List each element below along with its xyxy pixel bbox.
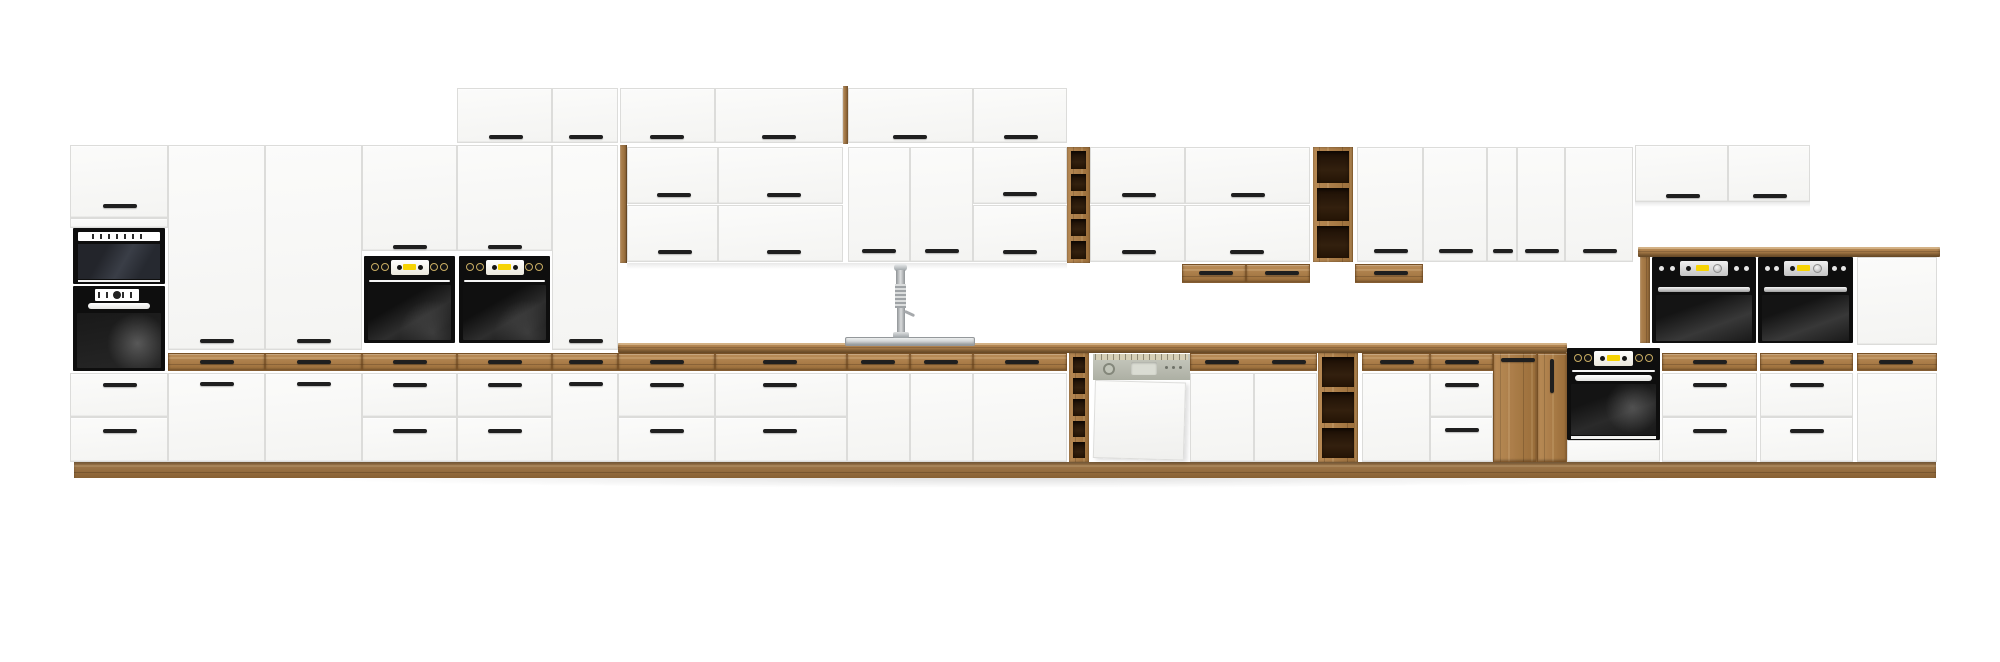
built-under-oven-knob-icon <box>1584 354 1592 362</box>
wall-shelf-narrow-cubby <box>1071 151 1086 169</box>
counter-oven-2-display <box>1797 265 1810 271</box>
faucet-base <box>893 332 909 338</box>
wall5-flip-lower <box>973 205 1067 262</box>
ovenhouse2-drawer-2 <box>457 417 552 462</box>
wall-short-2 <box>1728 145 1810 202</box>
wall11-door <box>1517 147 1565 262</box>
top-box-4-handle <box>762 135 796 139</box>
built-under-oven-door-handle <box>1575 375 1652 381</box>
tall1-drawer-1 <box>70 373 168 417</box>
ovenhouse1-drawer-1-handle <box>393 383 427 387</box>
wall3-door <box>848 147 910 262</box>
wall4-door <box>910 147 973 262</box>
built-in-oven-1-display-panel <box>391 260 429 275</box>
counter-oven-1 <box>1652 257 1756 343</box>
tall1-built-in-oven-display <box>95 289 139 301</box>
wall2-flip-lower-handle <box>767 250 801 254</box>
ovenhouse1-oak-drawer-handle <box>393 360 427 364</box>
sinkbase-oak-drawer-2-handle <box>924 360 958 364</box>
built-under-oven-control-band <box>1567 348 1660 368</box>
tall1-drawer-1-handle <box>103 383 137 387</box>
base7-drawer-1-handle <box>1693 383 1727 387</box>
pantry2-lower-door <box>168 373 265 462</box>
underwall-drawer-1 <box>1182 264 1246 283</box>
wall-shelf-wide-cubby <box>1317 151 1349 183</box>
base2-oak-drawer-handle <box>763 360 797 364</box>
base2-drawer-2 <box>715 417 847 462</box>
built-in-oven-2-knob-icon <box>535 263 543 271</box>
dishwasher-rack-strip <box>1095 354 1188 360</box>
ovenhouse1-drawer-1 <box>362 373 457 417</box>
built-in-oven-2-power-button <box>513 265 518 270</box>
top-box-6 <box>973 88 1067 143</box>
wall-shelf-wide <box>1313 147 1353 262</box>
base4-oak-drawer-handle <box>1272 360 1306 364</box>
faucet <box>886 264 916 338</box>
base6-oak-drawer-handle <box>1445 360 1479 364</box>
counter-oven-1-knob-icon <box>1734 266 1739 271</box>
wall10-door <box>1487 147 1517 262</box>
wall6-flip-lower-handle <box>1122 250 1156 254</box>
base8-drawer-2 <box>1760 417 1853 462</box>
base5-oak-drawer-handle <box>1380 360 1414 364</box>
tall1-shelf-strip <box>70 218 168 228</box>
kitchen-scene <box>0 0 2000 662</box>
built-in-oven-1-knob-icon <box>371 263 379 271</box>
underwall-drawer-2-handle <box>1265 271 1299 275</box>
built-under-oven-knob-icon <box>1635 354 1643 362</box>
built-under-oven-knob-icon <box>1574 354 1582 362</box>
top-box-2-handle <box>569 135 603 139</box>
counter-oven-2-knob-icon <box>1765 266 1770 271</box>
oak-door-1-handle <box>1501 358 1535 362</box>
tall1-drawer-2-handle <box>103 429 137 433</box>
built-under-oven-knob-icon <box>1645 354 1653 362</box>
sinkbase-oak-drawer-1 <box>847 353 910 371</box>
tall1-built-in-oven-door-handle <box>88 303 150 309</box>
counter-oven-2-knob-icon <box>1774 266 1779 271</box>
wall10-door-handle <box>1493 249 1513 253</box>
built-in-oven-2-door-trim <box>464 280 545 282</box>
top-box-4 <box>715 88 843 143</box>
pantry2-lower-door-handle <box>200 382 234 386</box>
ovenhouse1-drawer-2 <box>362 417 457 462</box>
wall6-flip-upper <box>1090 147 1185 204</box>
base3-oak-drawer-handle <box>1005 360 1039 364</box>
base-shelf-narrow-cubby <box>1073 421 1085 437</box>
tall1-built-in-oven-display-knob-icon <box>113 291 121 299</box>
sinkbase-oak-drawer-1-handle <box>861 360 895 364</box>
counter-oven-1-door-handle <box>1658 287 1750 292</box>
wall8-door-handle <box>1374 249 1408 253</box>
built-in-oven-2-knob-icon <box>466 263 474 271</box>
base1-drawer-1-handle <box>650 383 684 387</box>
dishwasher-door <box>1093 380 1186 461</box>
oak-door-2 <box>1537 353 1567 462</box>
base9-oak-drawer-handle <box>1879 360 1913 364</box>
counter-oven-2-door-handle <box>1764 287 1847 292</box>
wall-short-1 <box>1635 145 1728 202</box>
top-box-3 <box>620 88 715 143</box>
built-in-oven-1-knob-icon <box>430 263 438 271</box>
ovenhouse2-oak-drawer <box>457 353 552 371</box>
base3-oak-drawer <box>973 353 1067 371</box>
base-shelf-narrow-cubby <box>1073 399 1085 415</box>
pantry4-upper-door <box>552 145 618 350</box>
wall-shelf-narrow-cubby <box>1071 219 1086 237</box>
compact-oven <box>73 228 165 284</box>
ovenhouse2-upper-door <box>457 145 552 251</box>
tall1-built-in-oven-door-glass <box>77 313 161 368</box>
sinkbase-door-2 <box>910 373 973 462</box>
plinth <box>74 462 1936 478</box>
built-in-oven-2-power-button <box>492 265 497 270</box>
wall5-flip-upper <box>973 147 1067 204</box>
ovenhouse2-drawer-2-handle <box>488 429 522 433</box>
pantry3-upper-door-handle <box>297 339 331 343</box>
top-box-5-handle <box>893 135 927 139</box>
shade-under-wall <box>627 263 1067 269</box>
base4-door-2 <box>1254 373 1317 462</box>
base6-drawer-2-handle <box>1445 428 1479 432</box>
ovenhouse1-upper-door-handle <box>393 245 427 249</box>
base-shelf-wide <box>1318 353 1358 462</box>
pantry4-oak-drawer <box>552 353 618 371</box>
wall6-flip-lower <box>1090 205 1185 262</box>
pantry3-oak-drawer-handle <box>297 360 331 364</box>
base8-drawer-1 <box>1760 373 1853 417</box>
base8-oak-drawer-handle <box>1790 360 1824 364</box>
base-shelf-narrow-cubby <box>1073 378 1085 394</box>
wall12-door <box>1565 147 1633 262</box>
base1-drawer-1 <box>618 373 715 417</box>
base4-door-1 <box>1190 373 1254 462</box>
counter-oven-2-door-glass <box>1762 295 1849 341</box>
counter-oven-1-power-button <box>1686 266 1691 271</box>
oak-door-1 <box>1493 353 1537 462</box>
ovenhouse2-drawer-1 <box>457 373 552 417</box>
built-in-oven-2-display <box>498 264 511 270</box>
dishwasher-buttons <box>1165 366 1182 369</box>
built-in-oven-2-knob-icon <box>525 263 533 271</box>
built-in-oven-1-display <box>403 264 416 270</box>
built-in-oven-1-door-trim <box>369 280 450 282</box>
wall-short-1-handle <box>1666 194 1700 198</box>
base7-drawer-2-handle <box>1693 429 1727 433</box>
built-in-oven-1 <box>364 256 455 343</box>
counter-oven-1-control-band <box>1652 257 1756 279</box>
built-in-oven-2-control-band <box>459 256 550 278</box>
counter-oven-2-power-button <box>1790 266 1795 271</box>
base7-oak-drawer-handle <box>1693 360 1727 364</box>
dishwasher-dial <box>1103 363 1115 375</box>
underwall-drawer-1-handle <box>1199 271 1233 275</box>
hutch-door <box>1857 257 1937 345</box>
base6-drawer-1 <box>1430 373 1493 417</box>
tall1-top-door <box>70 145 168 218</box>
compact-oven-screen <box>78 244 160 279</box>
wall-end-panel <box>620 145 627 263</box>
ovenhouse2-drawer-1-handle <box>488 383 522 387</box>
base5-oak-drawer <box>1362 353 1430 371</box>
base7-drawer-1 <box>1662 373 1757 417</box>
pantry4-lower-door <box>552 373 618 462</box>
base8-drawer-2-handle <box>1790 429 1824 433</box>
built-under-oven <box>1567 348 1660 440</box>
built-in-oven-1-door-glass <box>368 285 451 340</box>
wall2-flip-upper <box>718 147 843 204</box>
wall11-door-handle <box>1525 249 1559 253</box>
counter-oven-2-dial-knob <box>1813 264 1822 273</box>
dishwasher <box>1093 354 1190 460</box>
base-shelf-wide-cubby <box>1322 392 1354 422</box>
built-in-oven-2-knob-icon <box>476 263 484 271</box>
counter-oven-1-knob-icon <box>1744 266 1749 271</box>
dishwasher-button <box>1165 366 1168 369</box>
wall7-flip-lower <box>1185 205 1310 262</box>
base1-drawer-2-handle <box>650 429 684 433</box>
top-box-5 <box>848 88 973 143</box>
counter-oven-2-display-panel <box>1784 261 1828 276</box>
wall9-door <box>1423 147 1487 262</box>
wall2-flip-lower <box>718 205 843 262</box>
top-box-1 <box>457 88 552 143</box>
pantry2-upper-door-handle <box>200 339 234 343</box>
top-box-2 <box>552 88 618 143</box>
base-shelf-wide-cubby <box>1322 357 1354 387</box>
base4-oak-drawer <box>1190 353 1317 371</box>
built-under-oven-power-button <box>1622 356 1627 361</box>
dishwasher-control-panel <box>1093 354 1190 380</box>
built-under-oven-display-panel <box>1594 351 1633 366</box>
compact-oven-bottom-trim <box>78 280 160 282</box>
wall1-flip-upper-handle <box>657 193 691 197</box>
tall1-top-door-handle <box>103 204 137 208</box>
wall7-flip-upper-handle <box>1231 193 1265 197</box>
pantry4-upper-door-handle <box>569 339 603 343</box>
ovenhouse1-drawer-2-handle <box>393 429 427 433</box>
built-in-oven-2-display-panel <box>486 260 524 275</box>
underwall-drawer-3 <box>1355 264 1423 283</box>
ovenhouse1-oak-drawer <box>362 353 457 371</box>
built-under-oven-door-glass <box>1571 384 1656 435</box>
sinkbase-door-1 <box>847 373 910 462</box>
countertop-main <box>618 343 1567 353</box>
built-under-oven-door-trim <box>1572 370 1655 372</box>
counter-oven-1-knob-icon <box>1670 266 1675 271</box>
built-in-oven-1-power-button <box>397 265 402 270</box>
counter-oven-2-knob-icon <box>1832 266 1837 271</box>
base7-oak-drawer <box>1662 353 1757 371</box>
base5-door <box>1362 373 1430 462</box>
wall2-flip-upper-handle <box>767 193 801 197</box>
base8-drawer-1-handle <box>1790 383 1824 387</box>
wall6-flip-upper-handle <box>1122 193 1156 197</box>
built-under-oven-display <box>1607 355 1620 361</box>
pantry2-oak-drawer <box>168 353 265 371</box>
counter-oven-1-display-panel <box>1680 261 1728 276</box>
base6-drawer-2 <box>1430 417 1493 462</box>
compact-oven-display-strip <box>78 232 160 241</box>
counter-oven-2 <box>1758 257 1853 343</box>
pantry2-upper-door <box>168 145 265 350</box>
faucet-lever <box>904 310 915 317</box>
faucet-neck <box>896 270 905 284</box>
dishwasher-handle-recess <box>1131 362 1157 375</box>
ovenhouse2-upper-door-handle <box>488 245 522 249</box>
wall5-flip-upper-handle <box>1003 192 1037 196</box>
pantry4-lower-door-handle <box>569 382 603 386</box>
dishwasher-button <box>1179 366 1182 369</box>
dishwasher-button <box>1172 366 1175 369</box>
built-in-oven-2-door-glass <box>463 285 546 340</box>
counter-oven-1-knob-icon <box>1659 266 1664 271</box>
wall-shelf-wide-cubby <box>1317 226 1349 258</box>
built-under-oven-power-button <box>1600 356 1605 361</box>
base2-drawer-1 <box>715 373 847 417</box>
base1-drawer-2 <box>618 417 715 462</box>
top-box-6-handle <box>1004 135 1038 139</box>
counter-oven-1-display <box>1696 265 1709 271</box>
wall9-door-handle <box>1439 249 1473 253</box>
pantry3-lower-door <box>265 373 362 462</box>
tall1-built-in-oven <box>73 286 165 371</box>
wall5-flip-lower-handle <box>1003 250 1037 254</box>
oak-door-2-handle <box>1550 359 1554 393</box>
base7-drawer-2 <box>1662 417 1757 462</box>
wall7-flip-upper <box>1185 147 1310 204</box>
base2-drawer-2-handle <box>763 429 797 433</box>
ovenhouse1-upper-door <box>362 145 457 251</box>
built-under-oven-bottom-trim <box>1571 436 1656 439</box>
wall1-flip-upper <box>627 147 718 204</box>
pantry2-oak-drawer-handle <box>200 360 234 364</box>
base6-oak-drawer <box>1430 353 1493 371</box>
tall1-drawer-2 <box>70 417 168 462</box>
ovenhouse2-oak-drawer-handle <box>488 360 522 364</box>
base-shelf-narrow-cubby <box>1073 357 1085 373</box>
base1-oak-drawer-handle <box>650 360 684 364</box>
counter-oven-2-control-band <box>1758 257 1853 279</box>
counter-oven-1-dial-knob <box>1713 264 1722 273</box>
pantry3-lower-door-handle <box>297 382 331 386</box>
top-box-1-handle <box>489 135 523 139</box>
base-shelf-wide-cubby <box>1322 428 1354 458</box>
base1-oak-drawer <box>618 353 715 371</box>
built-in-oven-1-knob-icon <box>381 263 389 271</box>
base8-oak-drawer <box>1760 353 1853 371</box>
wall-short-2-handle <box>1753 194 1787 198</box>
compact-oven-display-ticks <box>92 234 146 239</box>
pantry3-oak-drawer <box>265 353 362 371</box>
wall-shelf-wide-cubby <box>1317 188 1349 220</box>
top-box-3-handle <box>650 135 684 139</box>
pantry4-oak-drawer-handle <box>569 360 603 364</box>
faucet-spring-coil <box>895 284 906 308</box>
built-in-oven-1-power-button <box>418 265 423 270</box>
sinkbase-oak-drawer-2 <box>910 353 973 371</box>
base6-drawer-1-handle <box>1445 383 1479 387</box>
underwall-drawer-2 <box>1246 264 1310 283</box>
wall-shelf-narrow-cubby <box>1071 174 1086 192</box>
wall12-door-handle <box>1583 249 1617 253</box>
base2-oak-drawer <box>715 353 847 371</box>
counter-oven-1-door-glass <box>1656 295 1752 341</box>
wall-shelf-narrow-cubby <box>1071 196 1086 214</box>
counter-oven-2-knob-icon <box>1841 266 1846 271</box>
sink <box>845 337 975 346</box>
base9-oak-drawer <box>1857 353 1937 371</box>
raised-end-panel <box>1640 257 1650 343</box>
countertop-raised <box>1638 247 1940 257</box>
wall3-door-handle <box>862 249 896 253</box>
wall-shelf-narrow <box>1067 147 1090 263</box>
built-in-oven-2 <box>459 256 550 343</box>
wall1-flip-lower-handle <box>658 250 692 254</box>
base9-door <box>1857 373 1937 462</box>
wall8-door <box>1357 147 1423 262</box>
underwall-drawer-3-handle <box>1374 271 1408 275</box>
wall4-door-handle <box>925 249 959 253</box>
floor-shadow <box>70 478 1940 492</box>
base4-oak-drawer-handle <box>1205 360 1239 364</box>
built-in-oven-1-control-band <box>364 256 455 278</box>
built-in-oven-1-knob-icon <box>440 263 448 271</box>
base-shelf-narrow <box>1069 353 1089 462</box>
shade-under-wall-right <box>1635 202 1810 207</box>
wall7-flip-lower-handle <box>1230 250 1264 254</box>
base-shelf-narrow-cubby <box>1073 442 1085 458</box>
base3-door <box>973 373 1067 462</box>
built-under-oven-drawer <box>1567 440 1660 462</box>
pantry3-upper-door <box>265 145 362 350</box>
base2-drawer-1-handle <box>763 383 797 387</box>
wall-shelf-narrow-cubby <box>1071 241 1086 259</box>
wall1-flip-lower <box>627 205 718 262</box>
